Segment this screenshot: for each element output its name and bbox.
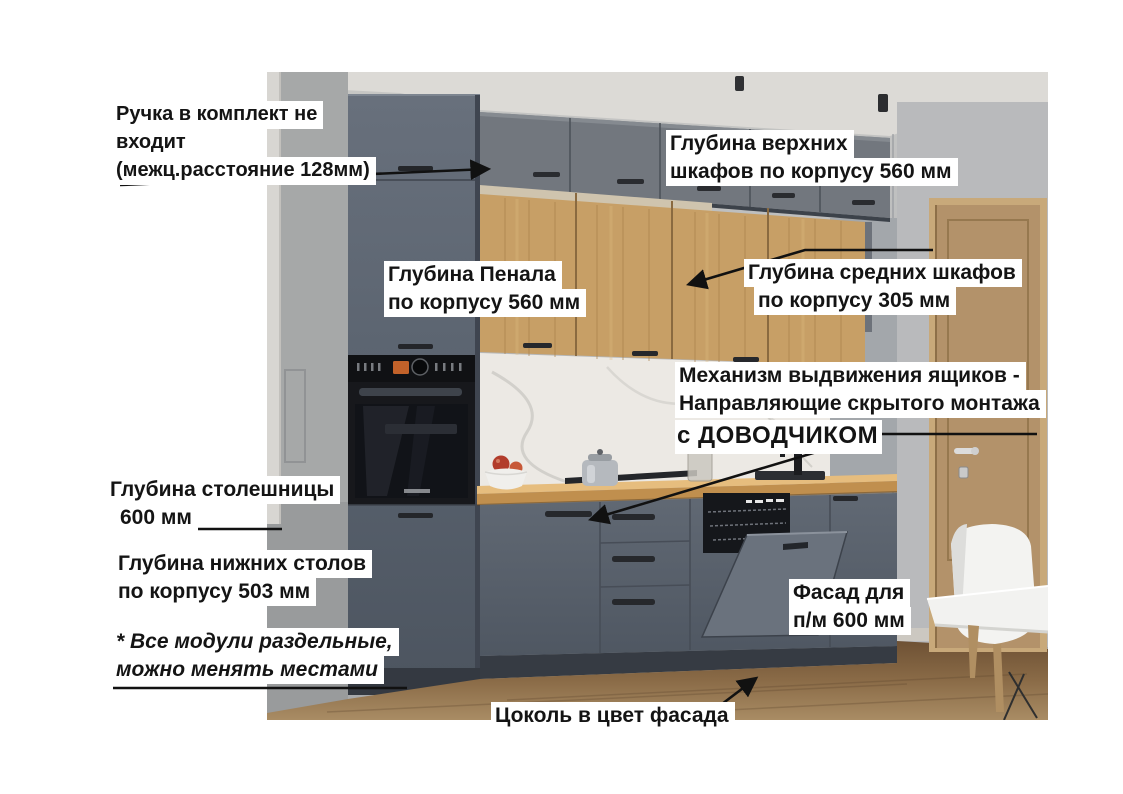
- cabinet-handle: [617, 179, 644, 184]
- drawer-handle: [612, 599, 655, 605]
- annotation-line: (межц.расстояние 128мм): [112, 157, 376, 185]
- cabinet-handle: [398, 513, 433, 518]
- cabinet-handle: [533, 172, 560, 177]
- oven-handle: [359, 388, 462, 396]
- cabinet-handle: [632, 351, 658, 356]
- annotation-line: Глубина Пенала: [384, 261, 562, 289]
- annotation-line: Глубина нижних столов: [114, 550, 372, 578]
- annotation-line: * Все модули раздельные,: [112, 628, 399, 656]
- annotation-line: п/м 600 мм: [789, 607, 911, 635]
- annotation-base-cabinet-depth: Глубина нижних столов по корпусу 503 мм: [114, 550, 372, 606]
- ceiling-spotlight: [878, 94, 888, 112]
- cabinet-handle: [852, 200, 875, 205]
- annotation-emphasis: с ДОВОДЧИКОМ: [675, 420, 882, 454]
- annotated-kitchen-diagram: Ручка в комплект не входит (межц.расстоя…: [0, 0, 1123, 794]
- annotation-line: по корпусу 560 мм: [384, 289, 586, 317]
- annotation-line: Ручка в комплект не: [112, 101, 323, 129]
- cabinet-handle: [398, 166, 433, 171]
- annotation-line: Глубина верхних: [666, 130, 854, 158]
- annotation-dishwasher-front: Фасад для п/м 600 мм: [789, 579, 911, 635]
- annotation-line: входит: [112, 129, 192, 157]
- drawer-handle: [612, 556, 655, 562]
- annotation-plinth-note: Цоколь в цвет фасада: [491, 702, 735, 730]
- annotation-middle-cabinet-depth: Глубина средних шкафов по корпусу 305 мм: [744, 259, 1022, 315]
- annotation-line: Фасад для: [789, 579, 910, 607]
- annotation-line: шкафов по корпусу 560 мм: [666, 158, 958, 186]
- annotation-handle-note: Ручка в комплект не входит (межц.расстоя…: [112, 101, 376, 185]
- cabinet-handle: [772, 193, 795, 198]
- annotation-modules-note: * Все модули раздельные, можно менять ме…: [112, 628, 399, 684]
- door-keyhole: [959, 467, 968, 478]
- annotation-line: можно менять местами: [112, 656, 384, 684]
- annotation-countertop-depth: Глубина столешницы 600 мм: [106, 476, 340, 532]
- annotation-line: Цоколь в цвет фасада: [491, 702, 735, 730]
- annotation-line: по корпусу 503 мм: [114, 578, 316, 606]
- drawer-handle: [612, 514, 655, 520]
- cabinet-handle: [697, 186, 721, 191]
- cabinet-handle: [545, 511, 592, 517]
- annotation-line: 600 мм: [106, 504, 198, 532]
- annotation-upper-cabinet-depth: Глубина верхних шкафов по корпусу 560 мм: [666, 130, 958, 186]
- annotation-tall-cabinet-depth: Глубина Пенала по корпусу 560 мм: [384, 261, 586, 317]
- annotation-drawer-mechanism: Механизм выдвижения ящиков - Направляющи…: [675, 362, 1046, 454]
- oven-knob: [412, 359, 428, 375]
- cabinet-handle: [523, 343, 552, 348]
- ceiling-spotlight: [735, 76, 744, 91]
- annotation-line: Механизм выдвижения ящиков -: [675, 362, 1026, 390]
- cabinet-handle: [398, 344, 433, 349]
- built-in-oven: [348, 355, 475, 505]
- annotation-line: по корпусу 305 мм: [754, 287, 956, 315]
- oven-display: [393, 361, 409, 374]
- annotation-line: Глубина средних шкафов: [744, 259, 1022, 287]
- annotation-line: Глубина столешницы: [106, 476, 340, 504]
- cabinet-handle: [833, 496, 858, 501]
- annotation-line: Направляющие скрытого монтажа: [675, 390, 1046, 418]
